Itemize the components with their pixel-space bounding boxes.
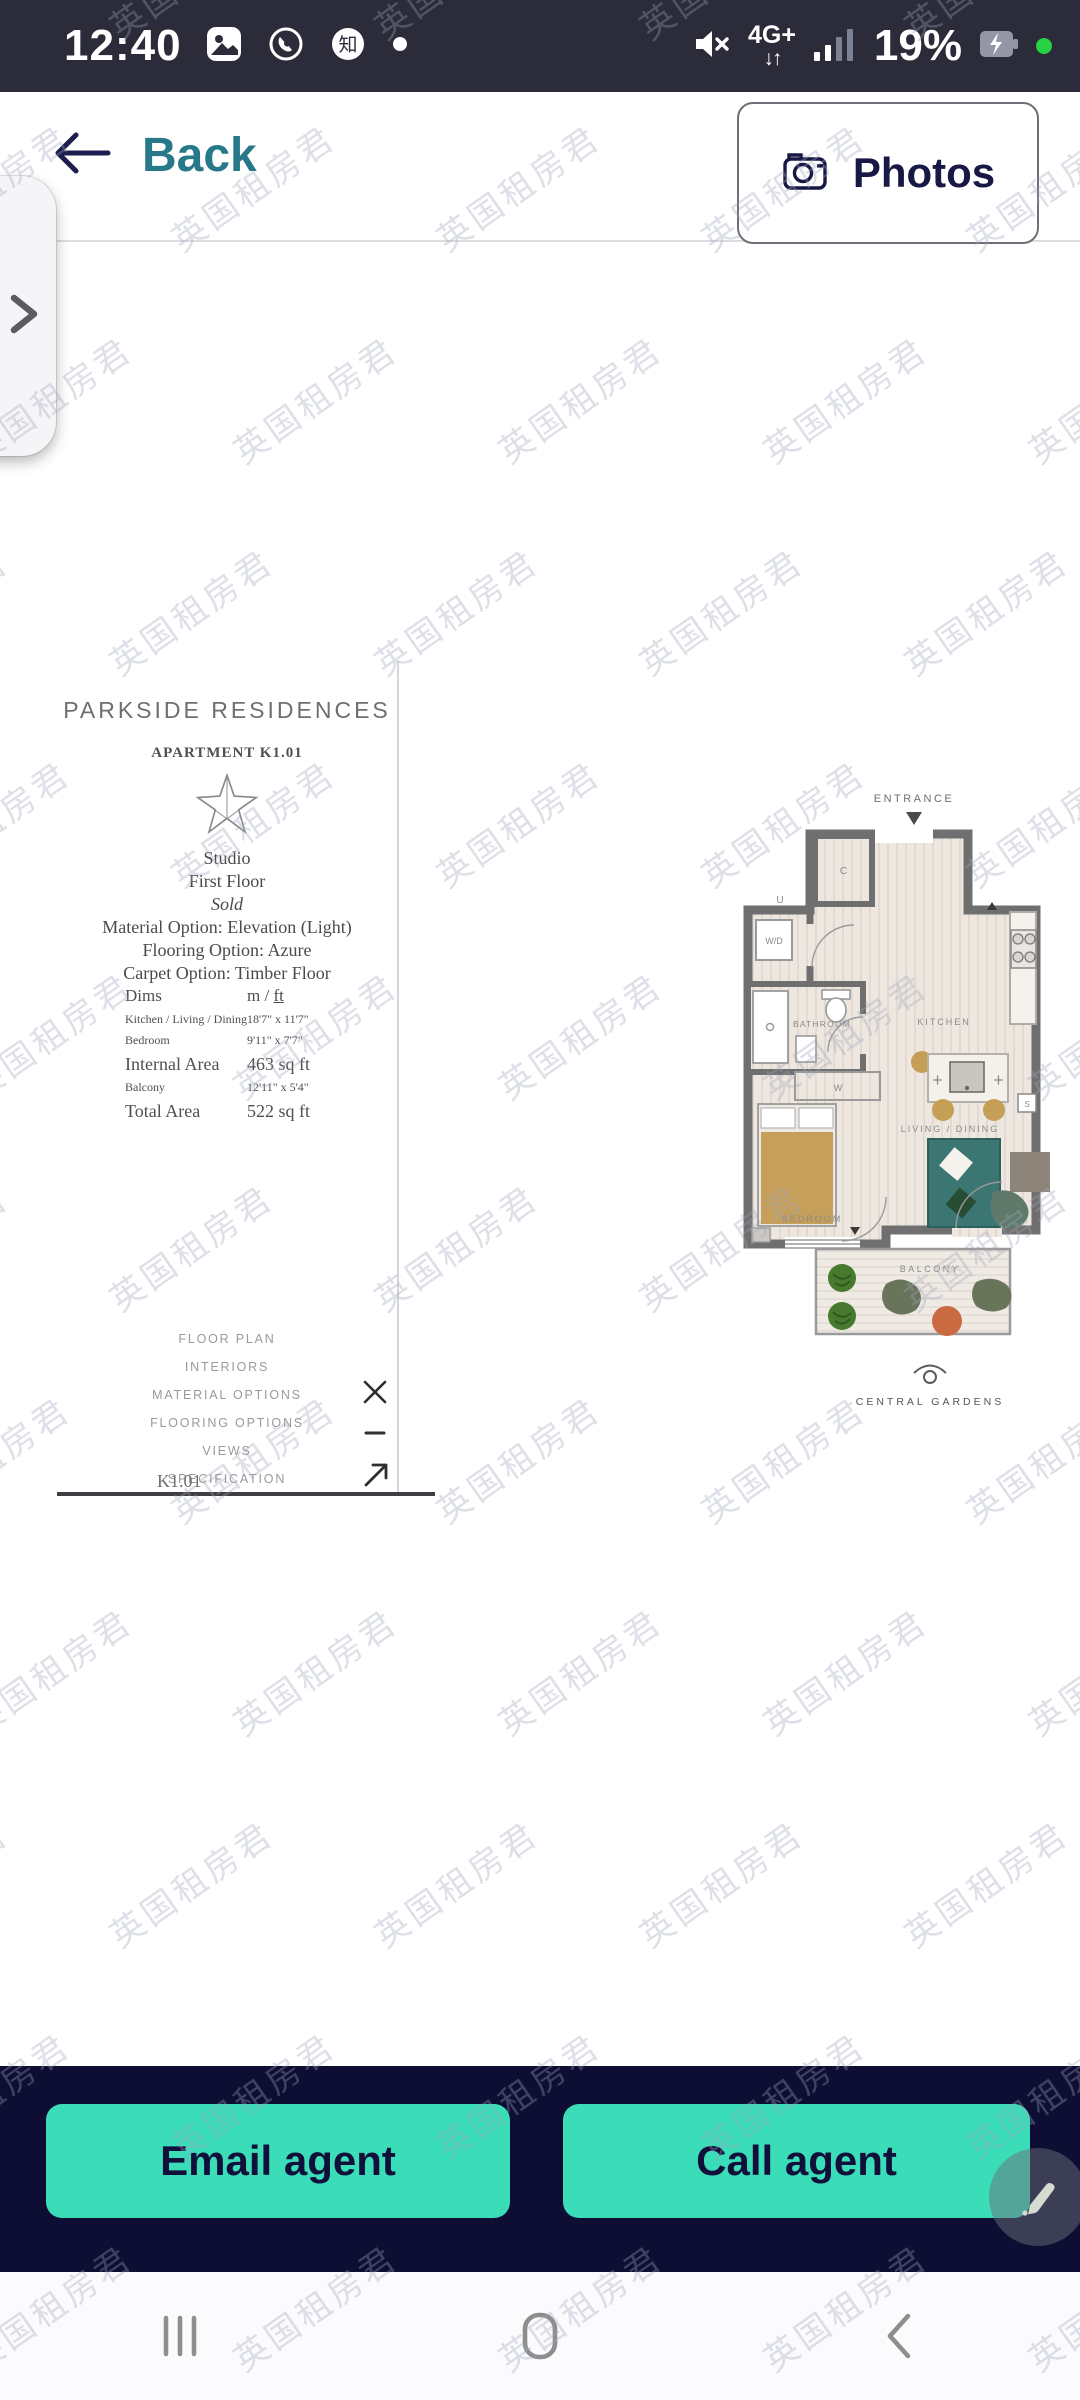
watermark-text: 英国租房君 bbox=[487, 960, 671, 1109]
notification-dot bbox=[390, 34, 410, 59]
entrance-arrow-icon bbox=[906, 812, 922, 825]
watermark-text: 英国租房君 bbox=[0, 1172, 17, 1321]
minimize-icon[interactable] bbox=[360, 1426, 392, 1445]
expand-arrow-icon[interactable] bbox=[360, 1459, 392, 1492]
detail-line: First Floor bbox=[57, 870, 397, 893]
app-header: Back Photos bbox=[0, 92, 1080, 242]
watermark-text: 英国租房君 bbox=[425, 1384, 609, 1533]
table-row: Kitchen / Living / Dining18'7" x 11'7" bbox=[125, 1009, 385, 1030]
watermark-text: 英国租房君 bbox=[363, 1808, 547, 1957]
unit-code: K1.01 bbox=[157, 1471, 202, 1492]
watermark-text: 英国租房君 bbox=[0, 536, 17, 685]
pencil-icon bbox=[1008, 2165, 1068, 2230]
chevron-right-icon bbox=[6, 288, 42, 345]
watermark-text: 英国租房君 bbox=[487, 324, 671, 473]
floorplan-drawing: ENTRANCE C U W/D bbox=[700, 772, 1080, 1432]
dims-header-value: m / ft bbox=[247, 983, 284, 1009]
network-type: 4G+ ↓↑ bbox=[748, 23, 796, 69]
storage-label: S bbox=[1024, 1100, 1029, 1109]
unit-details: Studio First Floor Sold Material Option:… bbox=[57, 847, 397, 985]
detail-line: Studio bbox=[57, 847, 397, 870]
detail-line: Flooring Option: Azure bbox=[57, 939, 397, 962]
watermark-text: 英国租房君 bbox=[222, 324, 406, 473]
kitchen-label: KITCHEN bbox=[917, 1017, 971, 1027]
detail-line: Material Option: Elevation (Light) bbox=[57, 916, 397, 939]
camera-icon bbox=[781, 149, 833, 198]
signal-bars-icon bbox=[812, 24, 858, 69]
balcony-label: BALCONY bbox=[900, 1264, 961, 1274]
wardrobe-label: W bbox=[834, 1083, 843, 1093]
table-row: Internal Area463 sq ft bbox=[125, 1051, 385, 1077]
menu-item-flooring-options[interactable]: FLOORING OPTIONS bbox=[57, 1409, 397, 1437]
watermark-text: 英国租房君 bbox=[1017, 324, 1080, 473]
home-icon bbox=[512, 2308, 568, 2364]
sink bbox=[796, 1036, 816, 1062]
watermark-text: 英国租房君 bbox=[628, 536, 812, 685]
call-agent-button[interactable]: Call agent bbox=[563, 2104, 1030, 2218]
viewer-bottom-edge bbox=[57, 1492, 435, 1496]
side-table bbox=[1010, 1152, 1050, 1192]
email-agent-button[interactable]: Email agent bbox=[46, 2104, 510, 2218]
closet-label: C bbox=[840, 866, 848, 877]
battery-percent: 19% bbox=[874, 21, 962, 71]
watermark-text: 英国租房君 bbox=[893, 1808, 1077, 1957]
dims-header-row: Dims m / ft bbox=[125, 983, 385, 1009]
star-logo-icon bbox=[189, 765, 265, 850]
utility-door-opening bbox=[805, 924, 815, 966]
entrance-opening bbox=[875, 825, 933, 843]
table-row: Balcony12'11" x 5'4" bbox=[125, 1077, 385, 1098]
menu-item-views[interactable]: VIEWS bbox=[57, 1437, 397, 1465]
recents-button[interactable] bbox=[0, 2308, 360, 2364]
shower bbox=[753, 991, 788, 1063]
table-row: Total Area522 sq ft bbox=[125, 1098, 385, 1124]
watermark-text: 英国租房君 bbox=[1017, 1596, 1080, 1745]
mute-speaker-icon bbox=[692, 26, 732, 67]
bed-cover bbox=[761, 1132, 833, 1224]
menu-item-interiors[interactable]: INTERIORS bbox=[57, 1353, 397, 1381]
watermark-text: 英国租房君 bbox=[98, 1808, 282, 1957]
bathroom-label: BATHROOM bbox=[793, 1019, 851, 1029]
pillow bbox=[761, 1108, 795, 1128]
viewer-tools bbox=[360, 1377, 392, 1492]
watermark-text: 英国租房君 bbox=[752, 1596, 936, 1745]
android-nav-bar bbox=[0, 2272, 1080, 2400]
android-back-button[interactable] bbox=[720, 2308, 1080, 2364]
side-drawer-tab[interactable] bbox=[0, 176, 56, 456]
balcony-table bbox=[932, 1306, 962, 1336]
bathroom-door-opening bbox=[860, 1014, 868, 1054]
gardens-caption: CENTRAL GARDENS bbox=[856, 1396, 1004, 1408]
living-label: LIVING / DINING bbox=[901, 1124, 1000, 1134]
back-arrow-icon bbox=[52, 128, 114, 183]
recents-icon bbox=[152, 2308, 208, 2364]
bedside-table bbox=[752, 1228, 770, 1242]
clock: 12:40 bbox=[64, 21, 182, 71]
stool bbox=[932, 1099, 954, 1121]
pillow bbox=[799, 1108, 833, 1128]
eye-icon bbox=[924, 1371, 936, 1383]
zhihu-icon: 知 bbox=[328, 24, 368, 69]
apartment-number: APARTMENT K1.01 bbox=[57, 745, 397, 762]
watermark-text: 英国租房君 bbox=[425, 748, 609, 897]
close-icon[interactable] bbox=[360, 1377, 392, 1412]
burner bbox=[1025, 952, 1035, 962]
stool bbox=[983, 1099, 1005, 1121]
floorplan-canvas[interactable]: ENTRANCE C U W/D bbox=[700, 772, 1080, 1432]
burner bbox=[1013, 952, 1023, 962]
back-button[interactable]: Back bbox=[52, 128, 257, 183]
svg-text:知: 知 bbox=[338, 34, 357, 56]
watermark-text: 英国租房君 bbox=[222, 1596, 406, 1745]
burner bbox=[1013, 934, 1023, 944]
floorplan-info-panel[interactable]: PARKSIDE RESIDENCES APARTMENT K1.01 Stud… bbox=[57, 661, 399, 1492]
watermark-text: 英国租房君 bbox=[487, 1596, 671, 1745]
dims-header-label: Dims bbox=[125, 986, 162, 1005]
watermark-text: 英国租房君 bbox=[628, 1808, 812, 1957]
menu-item-specification[interactable]: SPECIFICATION bbox=[57, 1465, 397, 1492]
gallery-icon bbox=[204, 24, 244, 69]
development-title: PARKSIDE RESIDENCES bbox=[57, 697, 397, 724]
utility-label: U bbox=[776, 895, 783, 906]
watermark-text: 英国租房君 bbox=[0, 1808, 17, 1957]
menu-item-material-options[interactable]: MATERIAL OPTIONS bbox=[57, 1381, 397, 1409]
status-left-cluster: 12:40 知 bbox=[0, 21, 410, 71]
status-right-cluster: 4G+ ↓↑ 19% bbox=[692, 21, 1080, 71]
burner bbox=[1025, 934, 1035, 944]
viewer-menu: FLOOR PLAN INTERIORS MATERIAL OPTIONS FL… bbox=[57, 1325, 397, 1492]
edit-fab[interactable] bbox=[989, 2148, 1080, 2246]
action-footer: Email agent Call agent bbox=[0, 2066, 1080, 2272]
photos-button[interactable]: Photos bbox=[737, 102, 1039, 244]
whatsapp-icon bbox=[266, 24, 306, 69]
table-row: Bedroom9'11" x 7'7" bbox=[125, 1030, 385, 1051]
bedroom-label: BEDROOM bbox=[782, 1214, 843, 1224]
watermark-text: 英国租房君 bbox=[893, 536, 1077, 685]
washer-dryer-label: W/D bbox=[765, 936, 783, 946]
watermark-text: 英国租房君 bbox=[752, 324, 936, 473]
phone-screen: 12:40 知 4G+ ↓↑ 19 bbox=[0, 0, 1080, 2400]
charging-status-dot bbox=[1036, 38, 1052, 54]
faucet bbox=[965, 1086, 969, 1090]
menu-item-floor-plan[interactable]: FLOOR PLAN bbox=[57, 1325, 397, 1353]
watermark-text: 英国租房君 bbox=[0, 1596, 141, 1745]
detail-line: Carpet Option: Timber Floor bbox=[57, 962, 397, 985]
battery-icon bbox=[978, 27, 1020, 66]
dimensions-table: Dims m / ft Kitchen / Living / Dining18'… bbox=[125, 983, 385, 1124]
back-chevron-icon bbox=[872, 2308, 928, 2364]
entrance-label: ENTRANCE bbox=[874, 793, 955, 805]
detail-line-status: Sold bbox=[57, 893, 397, 916]
status-bar: 12:40 知 4G+ ↓↑ 19 bbox=[0, 0, 1080, 92]
photos-label: Photos bbox=[853, 149, 995, 197]
home-button[interactable] bbox=[360, 2308, 720, 2364]
back-label: Back bbox=[142, 128, 257, 183]
